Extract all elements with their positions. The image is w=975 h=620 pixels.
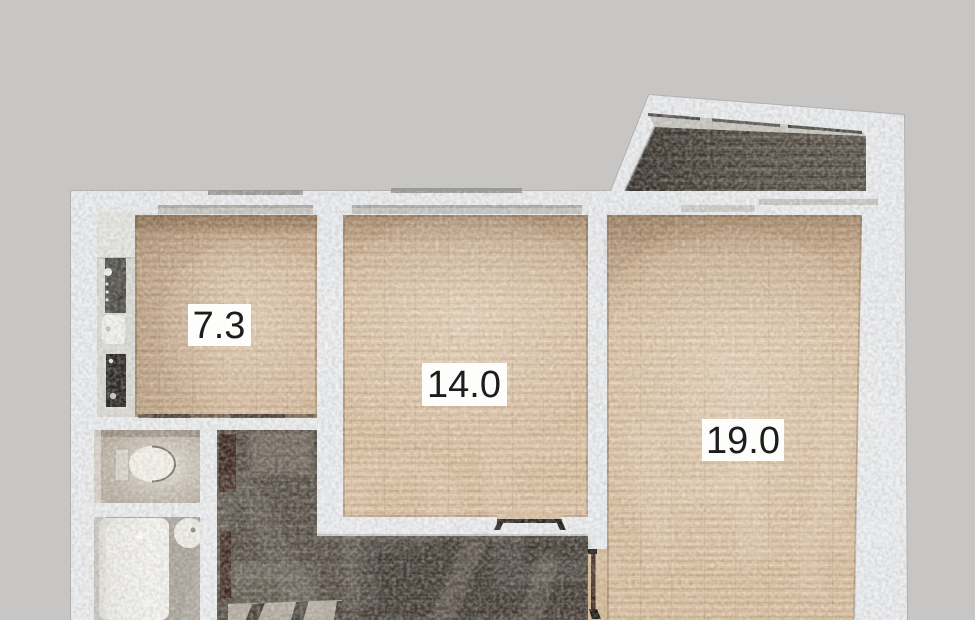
svg-text:14.0: 14.0 [427, 364, 501, 406]
svg-text:7.3: 7.3 [193, 305, 246, 347]
svg-text:19.0: 19.0 [706, 420, 780, 462]
